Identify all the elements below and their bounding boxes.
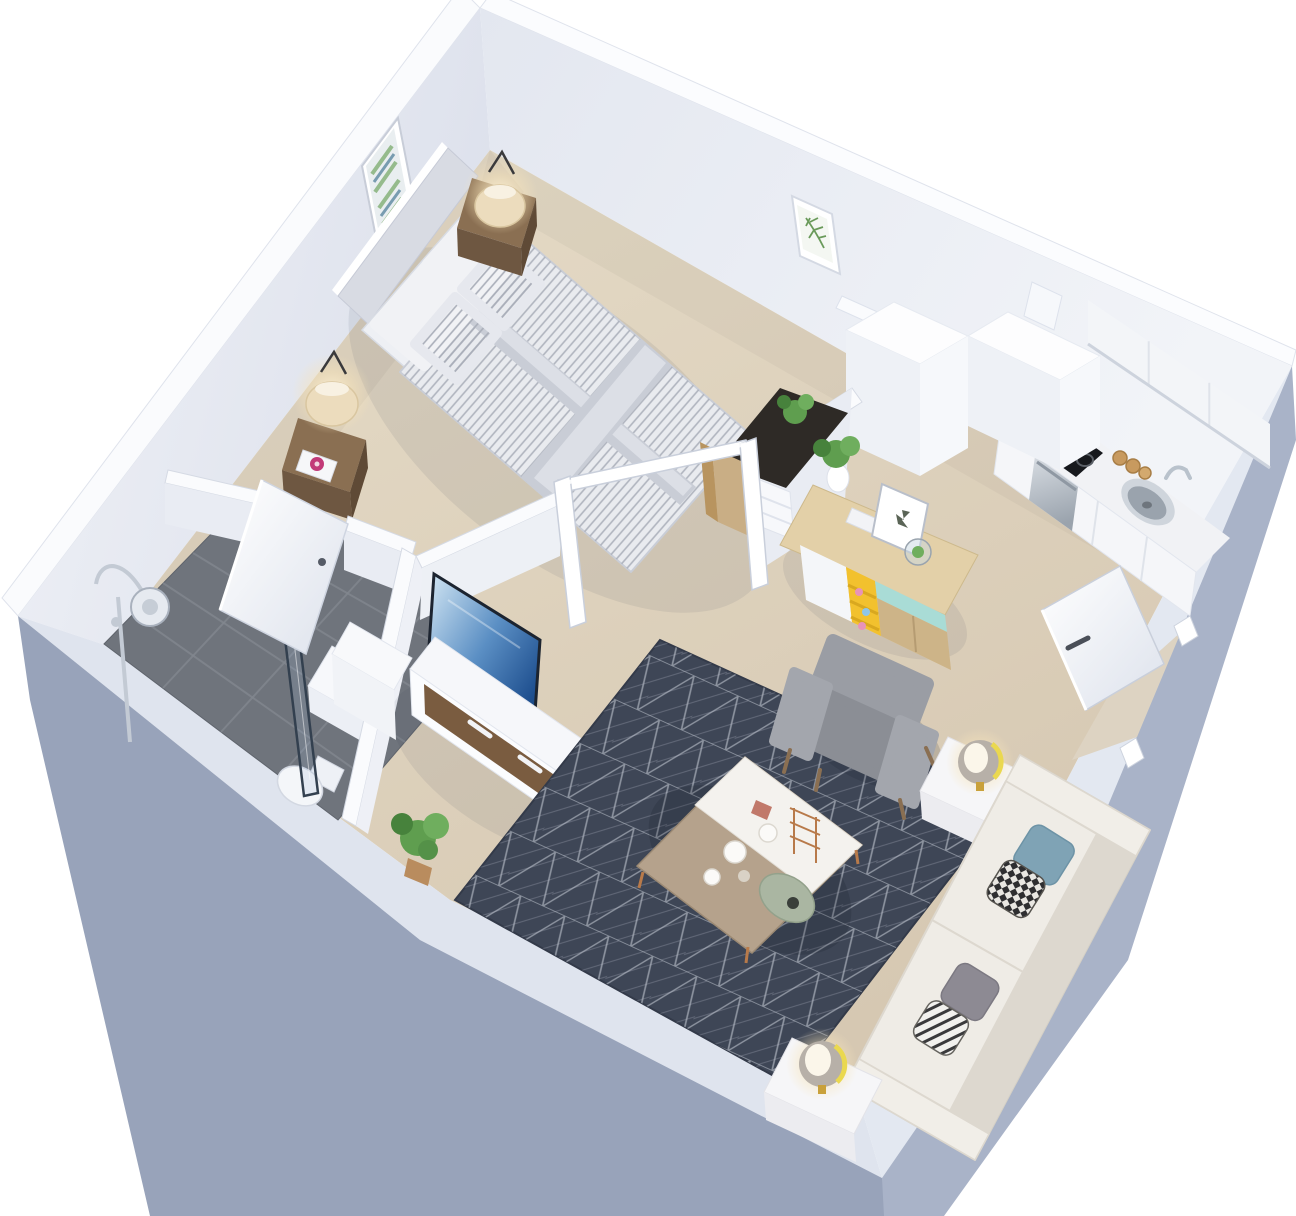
cup-2 [759, 824, 777, 842]
canister-3 [1139, 467, 1151, 479]
floorplan-stage [0, 0, 1296, 1216]
shower-valve [111, 617, 121, 627]
canister-2 [1126, 459, 1140, 473]
pitcher-plant-2 [840, 436, 860, 456]
shelf-jar-3 [858, 622, 866, 630]
pitcher [827, 464, 849, 492]
lamp-right-shade-top [484, 185, 516, 199]
bathroom-door-handle [318, 558, 326, 566]
sphere-lamp-upper-inner [964, 743, 988, 773]
cup-1 [724, 841, 746, 863]
sphere-lamp-lower-inner [805, 1044, 831, 1076]
shelf-jar-1 [855, 588, 863, 596]
desk-plant-leaf-2 [798, 394, 814, 410]
terrarium-plant [912, 546, 924, 558]
plant-leaf-4 [418, 840, 438, 860]
flower-center [315, 462, 320, 467]
plant-leaf-2 [423, 813, 449, 839]
plant-leaf-3 [391, 813, 413, 835]
pitcher-plant-3 [813, 439, 831, 457]
shelf-jar-2 [862, 608, 870, 616]
apartment-render [0, 0, 1296, 1216]
cup-3 [704, 869, 720, 885]
tray-cup [787, 897, 799, 909]
candle [738, 870, 750, 882]
shower-head-center [142, 599, 158, 615]
sink-drain [1142, 502, 1152, 509]
sphere-lamp-upper-base [976, 782, 984, 791]
desk-plant-leaf-3 [777, 395, 791, 409]
sphere-lamp-lower-base [818, 1085, 826, 1094]
closet-box-tall [846, 302, 968, 476]
canister-1 [1113, 451, 1127, 465]
lamp-left-shade-top [315, 382, 349, 396]
